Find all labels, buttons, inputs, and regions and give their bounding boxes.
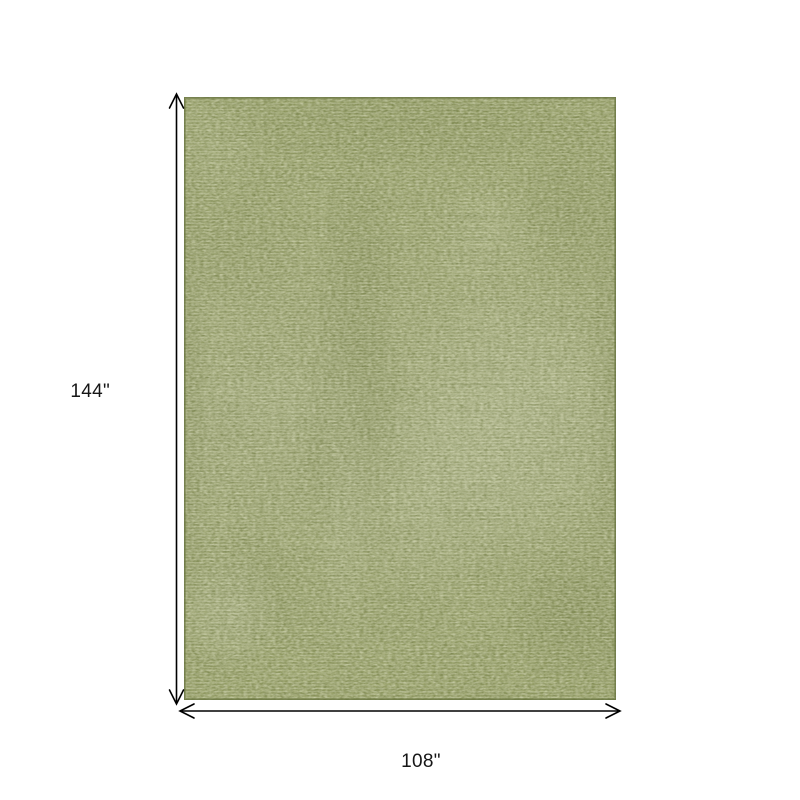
width-arrow [180, 704, 620, 718]
height-arrow [170, 94, 184, 704]
product-dimension-diagram: 144" 108" [0, 0, 800, 800]
rug-texture [184, 97, 616, 700]
rug-product-image [184, 97, 616, 700]
height-dimension-label: 144" [38, 381, 110, 403]
width-dimension-label: 108" [371, 751, 471, 773]
